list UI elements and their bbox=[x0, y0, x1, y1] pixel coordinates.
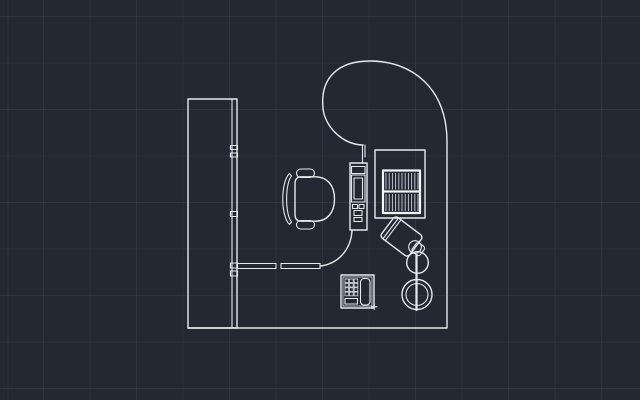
chair-backrest bbox=[283, 174, 292, 225]
modesty-panel-right[interactable] bbox=[281, 264, 320, 269]
office-chair[interactable] bbox=[283, 169, 335, 229]
cad-viewport[interactable] bbox=[0, 0, 640, 400]
phone-display bbox=[345, 299, 358, 305]
keyboard[interactable] bbox=[352, 167, 366, 222]
phone-handset bbox=[361, 279, 371, 306]
lamp-head bbox=[380, 216, 430, 263]
telephone[interactable] bbox=[341, 275, 377, 310]
monitor-box[interactable] bbox=[375, 150, 425, 218]
modesty-panel-left[interactable] bbox=[237, 264, 276, 269]
desk-return-panel[interactable] bbox=[188, 99, 238, 328]
phone-keypad bbox=[345, 279, 358, 296]
workstation-plan-drawing bbox=[0, 0, 640, 400]
task-lamp[interactable] bbox=[380, 216, 432, 310]
chair-seat bbox=[295, 177, 335, 221]
